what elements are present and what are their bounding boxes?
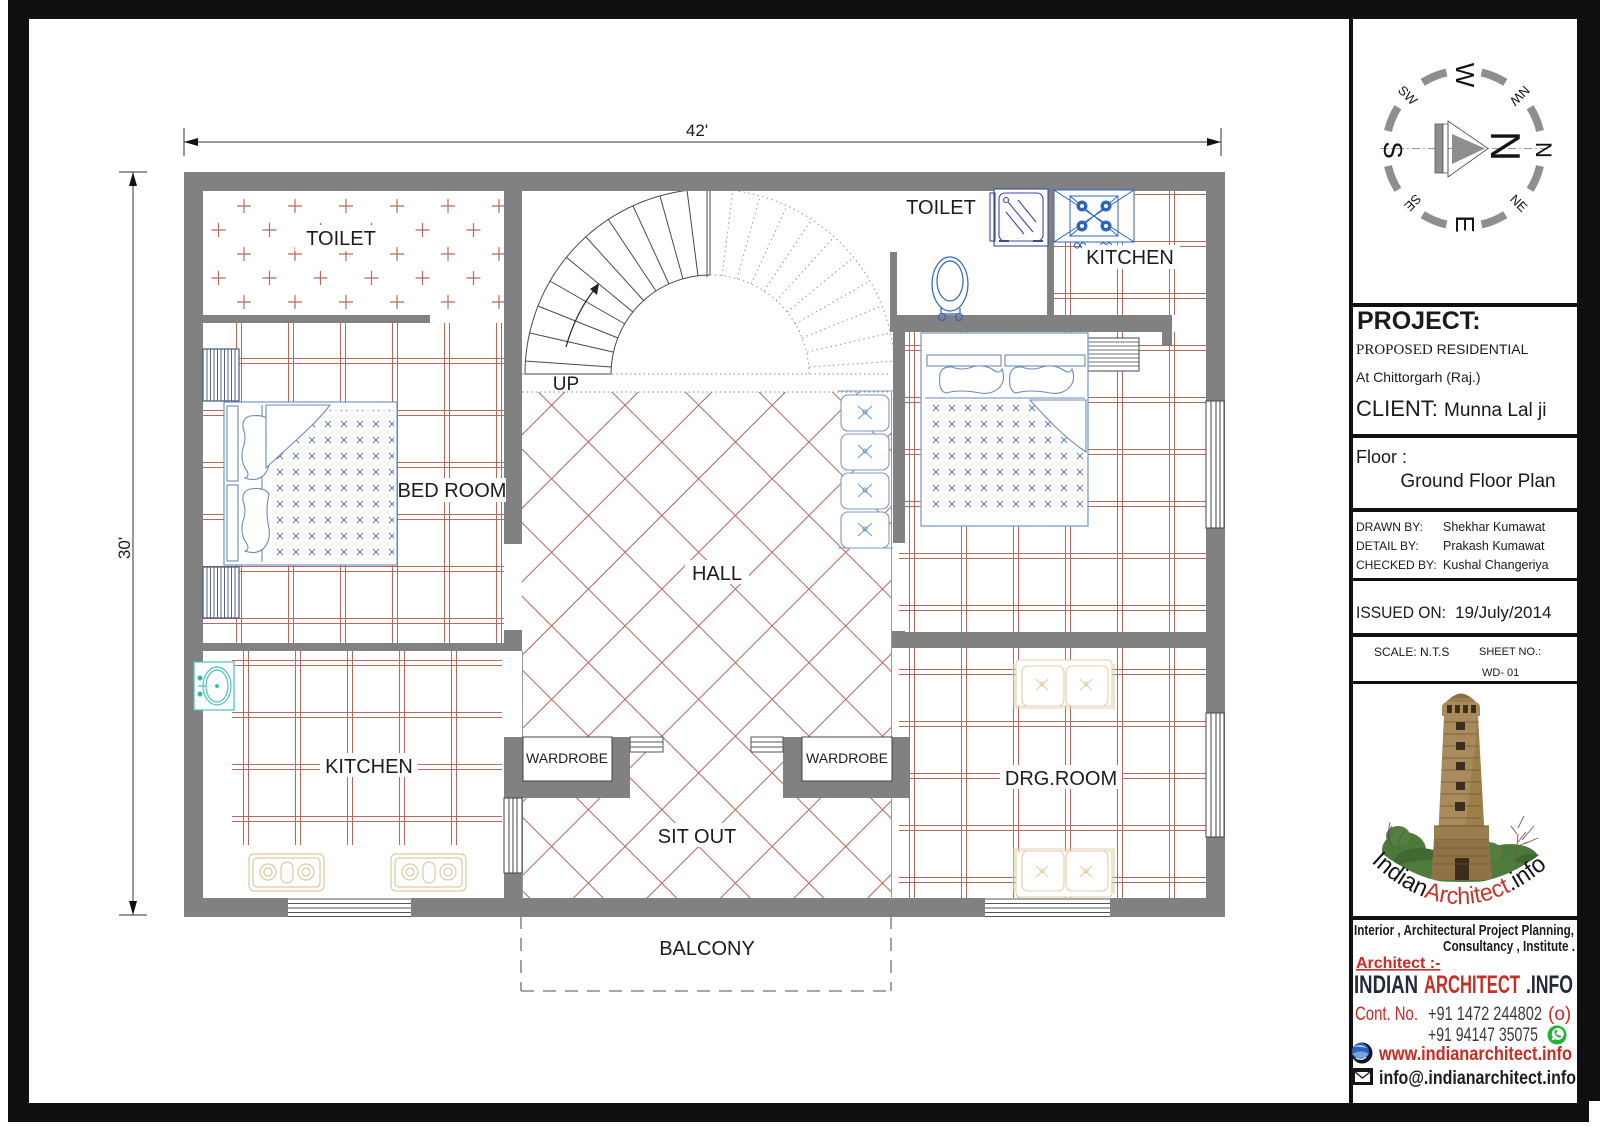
svg-text:ISSUED ON:: ISSUED ON: [1356,603,1446,622]
svg-text:KITCHEN: KITCHEN [1086,247,1174,269]
svg-text:Prakash Kumawat: Prakash Kumawat [1443,539,1545,553]
svg-text:+91 94147 35075: +91 94147 35075 [1428,1025,1538,1046]
svg-text:(o): (o) [1548,1004,1571,1025]
svg-text:WD- 01: WD- 01 [1482,667,1519,679]
svg-text:+91 1472 244802: +91 1472 244802 [1428,1004,1542,1025]
svg-text:SHEET NO.:: SHEET NO.: [1479,646,1541,658]
svg-text:DRAWN BY:: DRAWN BY: [1356,520,1423,534]
svg-text:Consultancy , Institute .: Consultancy , Institute . [1443,938,1575,955]
svg-text:KITCHEN: KITCHEN [325,756,413,778]
svg-text:At Chittorgarh (Raj.): At Chittorgarh (Raj.) [1356,369,1480,385]
svg-text:PROPOSED RESIDENTIAL: PROPOSED RESIDENTIAL [1356,341,1529,358]
svg-text:W: W [1450,63,1480,88]
svg-text:PROJECT:: PROJECT: [1357,307,1481,335]
svg-text:N: N [1482,131,1529,161]
svg-text:TOILET: TOILET [306,228,376,250]
svg-text:.INFO: .INFO [1526,971,1573,999]
svg-text:S: S [1378,141,1408,158]
svg-text:TOILET: TOILET [906,197,976,219]
svg-text:Ground Floor Plan: Ground Floor Plan [1400,471,1555,492]
svg-text:42': 42' [686,121,708,140]
svg-text:WARDROBE: WARDROBE [806,750,888,766]
svg-text:Architect :-: Architect :- [1356,955,1440,972]
svg-text:Cont. No.: Cont. No. [1355,1004,1418,1025]
svg-text:E: E [1450,215,1480,232]
svg-text:CLIENT: Munna Lal ji: CLIENT: Munna Lal ji [1356,396,1546,421]
svg-text:CHECKED BY:: CHECKED BY: [1356,558,1437,572]
svg-text:ARCHITECT: ARCHITECT [1424,971,1520,999]
svg-text:Interior , Architectural Proje: Interior , Architectural Project Plannin… [1354,922,1574,939]
svg-text:DRG.ROOM: DRG.ROOM [1005,768,1117,790]
svg-text:SCALE: N.T.S: SCALE: N.T.S [1374,645,1449,659]
svg-text:Floor :: Floor : [1356,447,1407,467]
svg-text:Kushal Changeriya: Kushal Changeriya [1443,558,1549,572]
svg-text:WARDROBE: WARDROBE [526,750,608,766]
svg-text:Shekhar Kumawat: Shekhar Kumawat [1443,520,1546,534]
svg-text:DETAIL BY:: DETAIL BY: [1356,539,1419,553]
svg-text:info@.indianarchitect.info: info@.indianarchitect.info [1379,1068,1576,1089]
svg-text:BALCONY: BALCONY [659,938,755,960]
svg-text:HALL: HALL [692,563,742,585]
svg-text:N: N [1531,142,1556,158]
svg-text:BED ROOM: BED ROOM [398,480,507,502]
svg-text:UP: UP [553,374,579,395]
svg-text:30': 30' [115,537,134,559]
svg-text:www.indianarchitect.info: www.indianarchitect.info [1378,1044,1572,1065]
svg-text:19/July/2014: 19/July/2014 [1455,603,1551,622]
svg-text:INDIAN: INDIAN [1354,971,1418,999]
svg-text:SIT OUT: SIT OUT [658,826,737,848]
